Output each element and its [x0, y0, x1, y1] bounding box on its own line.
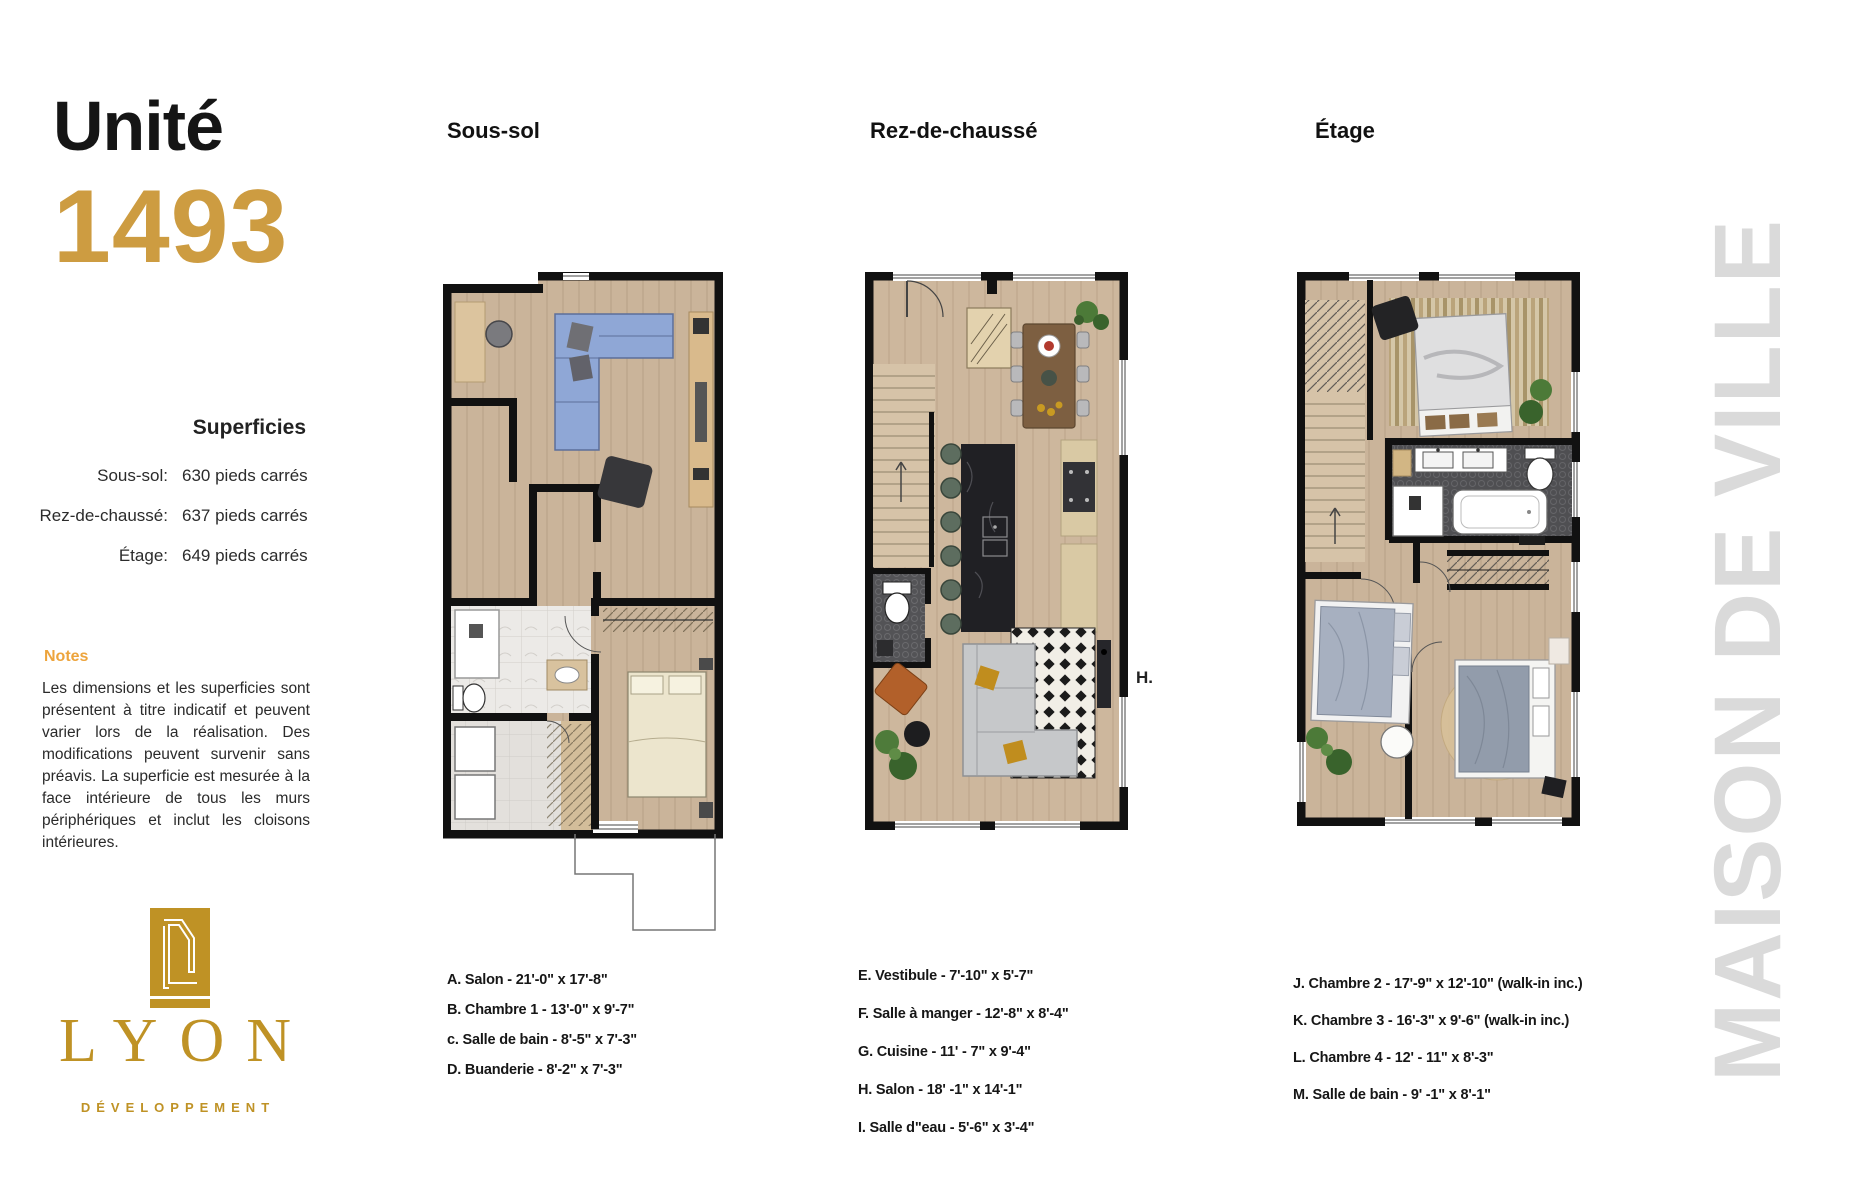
- lyon-logo-tagline: DÉVELOPPEMENT: [30, 1100, 320, 1115]
- room-list-etage: J. Chambre 2 - 17'-9" x 12'-10" (walk-in…: [1293, 976, 1633, 1124]
- lyon-logo-name: LYON: [30, 1006, 320, 1077]
- room-item: B. Chambre 1 - 13'-0" x 9'-7": [447, 1002, 747, 1018]
- plan-title-sous-sol: Sous-sol: [447, 118, 540, 144]
- superficies-label: Sous-sol:: [36, 466, 182, 486]
- room-item: K. Chambre 3 - 16'-3" x 9'-6" (walk-in i…: [1293, 1013, 1633, 1029]
- room-item: M. Salle de bain - 9' -1" x 8'-1": [1293, 1087, 1633, 1103]
- floorplan-etage: [1297, 272, 1580, 826]
- superficies-row: Rez-de-chaussé: 637 pieds carrés: [36, 506, 312, 546]
- superficies-row: Étage: 649 pieds carrés: [36, 546, 312, 586]
- superficies-value: 649 pieds carrés: [182, 546, 312, 566]
- room-item: L. Chambre 4 - 12' - 11" x 8'-3": [1293, 1050, 1633, 1066]
- unit-label: Unité: [53, 86, 223, 166]
- superficies-row: Sous-sol: 630 pieds carrés: [36, 466, 312, 506]
- plan-title-etage: Étage: [1315, 118, 1375, 144]
- room-item: I. Salle d"eau - 5'-6" x 3'-4": [858, 1120, 1188, 1136]
- room-item: E. Vestibule - 7'-10" x 5'-7": [858, 968, 1188, 984]
- room-item: J. Chambre 2 - 17'-9" x 12'-10" (walk-in…: [1293, 976, 1633, 992]
- plan-title-rez-de-chausse: Rez-de-chaussé: [870, 118, 1038, 144]
- floorplan-sous-sol: [443, 272, 723, 935]
- floorplan-sheet: Unité 1493 Superficies Sous-sol: 630 pie…: [0, 0, 1858, 1200]
- superficies-table: Sous-sol: 630 pieds carrés Rez-de-chauss…: [36, 466, 312, 586]
- side-watermark: MAISON DE VILLE: [1686, 148, 1810, 1152]
- room-list-rez-de-chausse: E. Vestibule - 7'-10" x 5'-7" F. Salle à…: [858, 968, 1188, 1158]
- plan-annotation-h: H.: [1136, 668, 1153, 688]
- lyon-logo-emblem-icon: [150, 908, 210, 1008]
- room-list-sous-sol: A. Salon - 21'-0" x 17'-8" B. Chambre 1 …: [447, 972, 747, 1092]
- side-watermark-text: MAISON DE VILLE: [1694, 218, 1803, 1082]
- superficies-value: 637 pieds carrés: [182, 506, 312, 526]
- superficies-label: Étage:: [36, 546, 182, 566]
- superficies-value: 630 pieds carrés: [182, 466, 312, 486]
- room-item: D. Buanderie - 8'-2" x 7'-3": [447, 1062, 747, 1078]
- room-item: A. Salon - 21'-0" x 17'-8": [447, 972, 747, 988]
- notes-title: Notes: [44, 648, 88, 666]
- unit-number: 1493: [53, 168, 288, 287]
- room-item: H. Salon - 18' -1" x 14'-1": [858, 1082, 1188, 1098]
- superficies-title: Superficies: [40, 416, 306, 440]
- room-item: G. Cuisine - 11' - 7" x 9'-4": [858, 1044, 1188, 1060]
- floorplan-rez-de-chausse: [865, 272, 1128, 830]
- notes-body: Les dimensions et les superficies sont p…: [42, 678, 310, 854]
- room-item: c. Salle de bain - 8'-5" x 7'-3": [447, 1032, 747, 1048]
- superficies-label: Rez-de-chaussé:: [36, 506, 182, 526]
- room-item: F. Salle à manger - 12'-8" x 8'-4": [858, 1006, 1188, 1022]
